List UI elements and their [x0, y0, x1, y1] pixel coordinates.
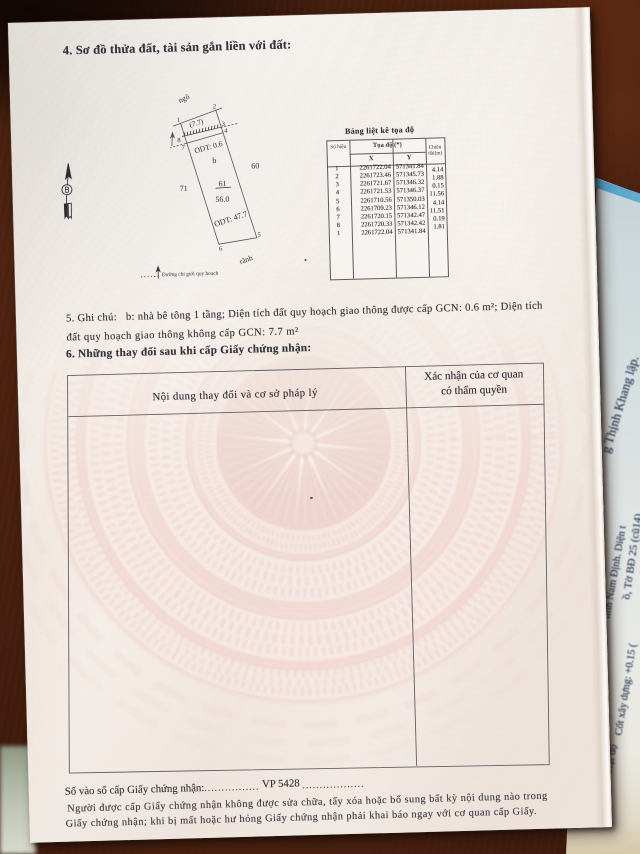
svg-text:71: 71 [180, 184, 188, 193]
svg-text:Đường chỉ giới quy hoạch: Đường chỉ giới quy hoạch [162, 271, 219, 279]
svg-text:56.0: 56.0 [215, 195, 229, 204]
svg-text:4: 4 [224, 127, 228, 134]
svg-text:61: 61 [218, 179, 226, 188]
svg-text:rãnh: rãnh [238, 253, 254, 266]
svg-text:60: 60 [251, 161, 259, 170]
svg-text:ODT: 47.7: ODT: 47.7 [213, 209, 248, 228]
svg-text:2: 2 [213, 103, 216, 110]
svg-text:7: 7 [182, 144, 186, 151]
svg-text:6: 6 [219, 246, 223, 253]
svg-text:(7.7): (7.7) [188, 116, 205, 129]
svg-text:5: 5 [257, 232, 261, 239]
svg-text:b: b [212, 156, 216, 165]
svg-text:ODT: 0.6: ODT: 0.6 [193, 139, 223, 155]
svg-text:ngõ: ngõ [177, 92, 191, 105]
svg-text:1: 1 [177, 117, 180, 124]
svg-text:8: 8 [177, 137, 181, 144]
